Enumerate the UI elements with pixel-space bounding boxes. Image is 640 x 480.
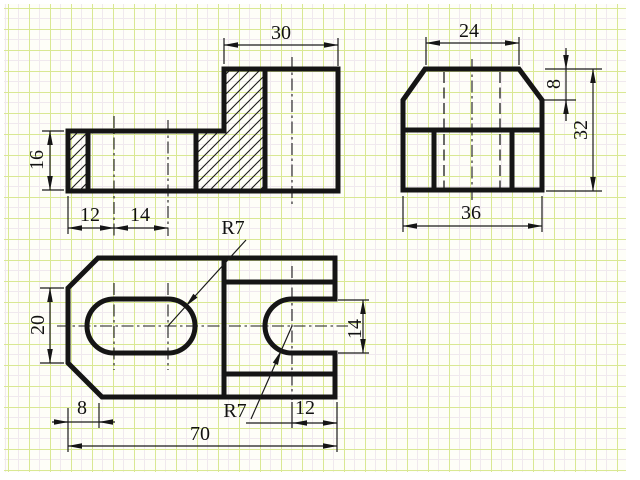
side-view: 24 8 32 36 bbox=[403, 20, 602, 232]
plan-notch-radius-label: R7 bbox=[223, 400, 246, 422]
plan-chamfer-label: 8 bbox=[77, 397, 87, 419]
leader-slot-radius-r7: R7 bbox=[168, 217, 246, 326]
front-hatched-left-wall bbox=[68, 131, 88, 191]
side-chamfer-label: 8 bbox=[543, 79, 565, 89]
dim-side-top-width-24: 24 bbox=[426, 20, 519, 65]
plan-length-label: 70 bbox=[190, 423, 210, 445]
plan-notch-depth-label: 12 bbox=[295, 397, 315, 419]
plan-slot-radius-label: R7 bbox=[221, 217, 244, 239]
front-hole-pitch-label: 14 bbox=[130, 204, 150, 226]
front-height-label: 16 bbox=[26, 150, 48, 170]
side-height-label: 32 bbox=[570, 120, 592, 140]
plan-view: R7 R7 20 8 bbox=[27, 217, 369, 452]
front-view: 16 30 12 14 bbox=[26, 22, 338, 236]
dim-plan-notch-depth-12: 12 bbox=[246, 397, 337, 428]
plan-width-label: 20 bbox=[27, 315, 49, 335]
dim-front-height-16: 16 bbox=[26, 131, 64, 190]
engineering-drawing-svg: 16 30 12 14 bbox=[0, 0, 640, 480]
front-boss-width-label: 30 bbox=[271, 22, 291, 44]
side-width-label: 36 bbox=[461, 202, 481, 224]
dim-front-hole-offset-12: 12 bbox=[68, 196, 114, 234]
dim-side-width-36: 36 bbox=[403, 196, 542, 232]
dim-plan-chamfer-8: 8 bbox=[52, 397, 115, 428]
dim-front-boss-width-30: 30 bbox=[224, 22, 338, 66]
side-top-width-label: 24 bbox=[459, 20, 479, 42]
dim-front-hole-pitch-14: 14 bbox=[114, 204, 168, 228]
plan-notch-width-label: 14 bbox=[344, 319, 366, 339]
front-hole-offset-label: 12 bbox=[80, 204, 100, 226]
drawing-sheet: 16 30 12 14 bbox=[0, 0, 640, 480]
plan-inner-edges bbox=[224, 258, 335, 397]
